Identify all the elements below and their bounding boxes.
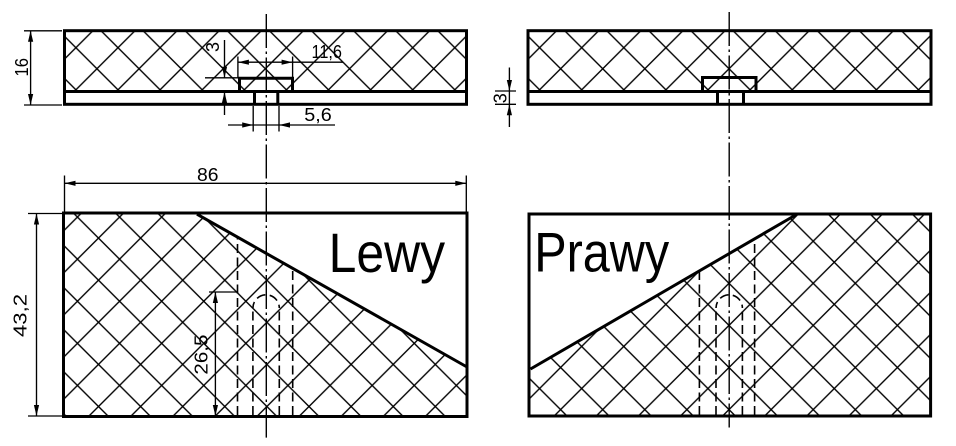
svg-text:86: 86 [197, 165, 219, 185]
svg-text:Prawy: Prawy [534, 221, 669, 284]
svg-text:26,5: 26,5 [192, 335, 212, 375]
svg-text:43,2: 43,2 [10, 294, 30, 337]
svg-text:Lewy: Lewy [329, 221, 446, 284]
svg-text:3: 3 [203, 42, 223, 52]
svg-text:3: 3 [491, 93, 511, 103]
svg-text:16: 16 [12, 58, 32, 77]
svg-text:11,6: 11,6 [312, 42, 343, 62]
svg-text:5,6: 5,6 [304, 105, 332, 125]
